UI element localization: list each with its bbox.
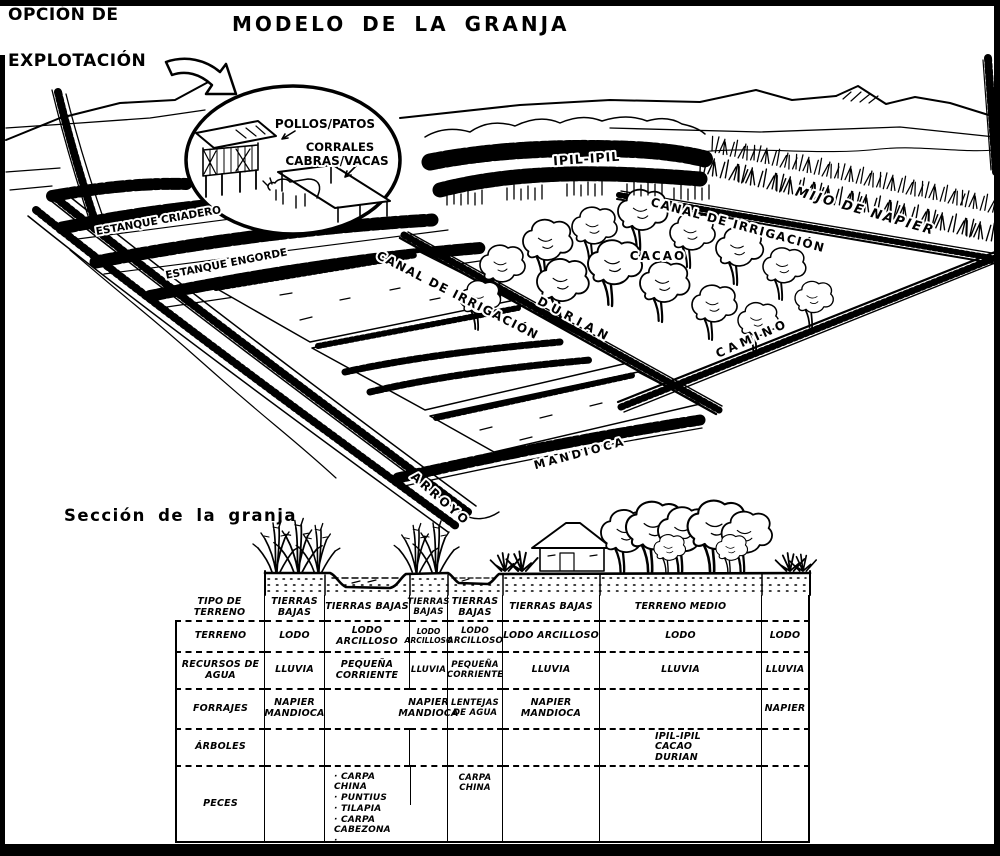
table-cell bbox=[600, 690, 762, 730]
table-cell bbox=[448, 730, 503, 767]
row-header-arboles: ÁRBOLES bbox=[175, 730, 265, 767]
row-header-tipo: TIPO DE TERRENO bbox=[175, 595, 265, 622]
table-cell: NAPIER MANDIOCA bbox=[265, 690, 325, 730]
list-line: CARPA CHINA bbox=[334, 772, 408, 792]
section-title: Sección de la granja bbox=[64, 506, 297, 525]
table-cell: LODO ARCILLOSO bbox=[448, 622, 503, 653]
pond-plots bbox=[212, 252, 700, 452]
farm-cross-section bbox=[253, 501, 816, 595]
list-line: CARPA CABEZONA bbox=[334, 815, 408, 835]
option-line1: OPCIÓN DE bbox=[8, 5, 119, 25]
label-corrales: CORRALES bbox=[306, 140, 374, 154]
list-line: DURIAN bbox=[655, 753, 698, 764]
section-trees bbox=[601, 501, 772, 573]
row-header-agua: RECURSOS DE AGUA bbox=[175, 653, 265, 690]
table-cell: LODO bbox=[762, 622, 810, 653]
table-cell: NAPIER MANDIOCA bbox=[503, 690, 600, 730]
col-header: TIERRAS BAJAS bbox=[325, 595, 410, 622]
frame-top bbox=[0, 0, 1000, 6]
table-cell bbox=[600, 767, 762, 843]
list-line: PUNTIUS bbox=[334, 793, 387, 803]
table-cell bbox=[503, 730, 600, 767]
table-cell: LLUVIA bbox=[600, 653, 762, 690]
table-cell bbox=[762, 767, 810, 843]
col-header: TERRENO MEDIO bbox=[600, 595, 762, 622]
table-cell: NAPIER MANDIOCA bbox=[410, 690, 448, 730]
table-cell: PEQUEÑA CORRIENTE bbox=[325, 653, 410, 690]
frame-bottom bbox=[0, 844, 1000, 856]
col-header: TIERRAS BAJAS bbox=[410, 595, 448, 622]
list-line: TILAPIA bbox=[334, 804, 381, 814]
table-cell bbox=[325, 730, 410, 767]
section-house bbox=[532, 523, 612, 571]
table-cell bbox=[325, 690, 410, 730]
col-header: TIERRAS BAJAS bbox=[503, 595, 600, 622]
label-pollos-patos: POLLOS/PATOS bbox=[275, 117, 375, 131]
table-cell: LODO ARCILLOSO bbox=[503, 622, 600, 653]
farm-section-table: TIPO DE TERRENO TIERRAS BAJAS TIERRAS BA… bbox=[175, 595, 810, 843]
diagram-page: ESTANQUE CRIADERO ESTANQUE ENGORDE IPIL-… bbox=[0, 0, 1000, 856]
page-title: MODELO DE LA GRANJA bbox=[232, 12, 570, 36]
table-cell: LENTEJAS DE AGUA bbox=[448, 690, 503, 730]
col-header: TIERRAS BAJAS bbox=[265, 595, 325, 622]
table-cell-peces-list: CARPA CHINAPUNTIUSTILAPIACARPA CABEZONAL… bbox=[325, 767, 410, 843]
row-header-peces: PECES bbox=[175, 767, 265, 843]
table-cell-peces-carpa: CARPA CHINA bbox=[448, 767, 503, 843]
row-header-terreno: TERRENO bbox=[175, 622, 265, 653]
col-header bbox=[762, 595, 810, 622]
option-label: OPCIÓN DE EXPLOTACIÓN bbox=[8, 4, 146, 73]
frame-right bbox=[994, 0, 1000, 856]
table-cell bbox=[410, 767, 448, 843]
callout-arrow bbox=[166, 59, 236, 94]
table-cell: PEQUEÑA CORRIENTE bbox=[448, 653, 503, 690]
table-cell: LODO ARCILLOSO bbox=[325, 622, 410, 653]
table-cell: LLUVIA bbox=[503, 653, 600, 690]
frame-left bbox=[0, 55, 5, 845]
table-cell: LLUVIA bbox=[265, 653, 325, 690]
table-cell-arboles: IPIL-IPILCACAODURIAN bbox=[600, 730, 762, 767]
list-line: LANGOSTINO DE AGUA DULCE bbox=[334, 836, 408, 856]
table-cell bbox=[265, 767, 325, 843]
table-cell: LODO bbox=[265, 622, 325, 653]
table-cell: LLUVIA bbox=[410, 653, 448, 690]
table-cell: LODO ARCILLOSO bbox=[410, 622, 448, 653]
table-cell: NAPIER bbox=[762, 690, 810, 730]
option-line2: EXPLOTACIÓN bbox=[8, 51, 146, 71]
table-cell bbox=[410, 730, 448, 767]
table-cell: LLUVIA bbox=[762, 653, 810, 690]
col-header: TIERRAS BAJAS bbox=[448, 595, 503, 622]
row-header-forrajes: FORRAJES bbox=[175, 690, 265, 730]
table-cell: LODO bbox=[600, 622, 762, 653]
table-cell bbox=[762, 730, 810, 767]
partial-divider bbox=[410, 767, 411, 805]
table-cell bbox=[265, 730, 325, 767]
label-cacao: CACAO bbox=[630, 249, 686, 263]
table-cell bbox=[503, 767, 600, 843]
label-cabras-vacas: CABRAS/VACAS bbox=[285, 154, 388, 168]
